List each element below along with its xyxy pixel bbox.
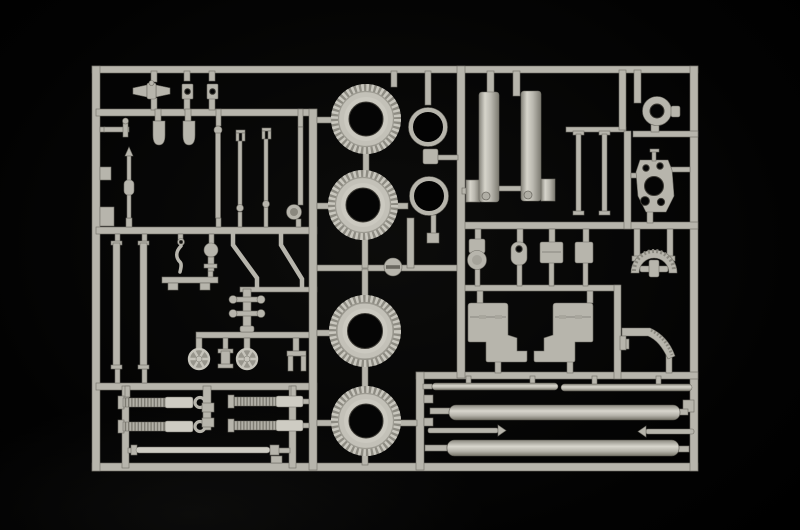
trail-plate-left [468,303,527,362]
slotted-disc-part [384,258,402,276]
thin-tube-1 [432,383,558,390]
link-rod-capped [214,126,222,218]
pointed-rod-left [428,425,506,436]
runner-above-plates [458,285,620,291]
sprue-photo [0,0,800,530]
bent-rod-2 [281,234,302,287]
legged-bracket-part [287,338,306,371]
rail-sector [614,285,621,379]
rail-center-right [457,66,465,378]
frame-rail-left [92,66,100,471]
thin-tube-2 [561,384,692,391]
ring-2 [410,177,449,216]
teardrop-fitting-1 [153,121,165,145]
runner-topleft-divider [96,109,317,116]
spring-center-tab-1 [202,403,214,412]
hook-lever-part [177,239,185,273]
tire-3 [329,295,401,367]
tire-4 [331,386,401,456]
long-rod-left-2 [138,241,149,369]
runner-left-divider [96,227,317,234]
fitting-round-cylinder [468,239,487,270]
runner-handwheel-bar [196,332,317,338]
axle-rod-part [131,445,282,463]
fitting-square-plate-2 [575,242,593,263]
thick-tube-2 [447,440,679,456]
bracket-bore [645,177,664,196]
tire-1 [331,84,401,154]
photo-stage [0,0,800,530]
handwheel-2 [237,338,258,370]
shock-absorber-4 [228,419,303,432]
runner-link-bar [240,287,317,292]
drilled-block-2 [207,84,218,99]
long-rod-left-1 [111,241,122,369]
piston-rod-2 [599,131,610,215]
ring-1 [409,108,448,147]
pointed-rod-right [638,426,694,437]
teardrop-fitting-2 [183,121,195,145]
cylinder-group [466,91,610,215]
bent-rod-1 [233,234,257,287]
fitting-square-plate-1 [540,242,563,263]
spring-center-tab-2 [202,418,214,427]
rail-ring-drop [407,218,414,268]
shackle-cluster-part [229,289,265,332]
runner-under-hub [633,131,698,137]
clevis-rod-1 [236,130,245,212]
piston-rod-1 [573,131,584,215]
handwheel-1 [189,338,210,370]
hub-tab [671,106,680,117]
tire-2 [328,170,398,240]
thick-tube-1 [449,405,680,420]
rail-bracket [624,131,631,229]
shock-absorber-1 [118,396,205,409]
recuperator-cylinder-2 [521,91,555,201]
bobbin-part [218,338,233,368]
runner-under-cylinders [458,222,698,229]
clevis-rod-2 [262,128,271,208]
rail-tire-left [309,109,317,470]
frame-rail-bottom [92,463,698,471]
tall-pin-part [124,147,134,218]
post-hub [634,70,641,103]
trail-plate-right [534,303,593,362]
winged-fitting [133,81,170,100]
drilled-block-1 [182,84,193,99]
rod-with-pulley [287,127,304,220]
hub-ring-part [643,97,681,126]
fitting-keyhole-plate [511,242,527,265]
tube-group [428,383,694,456]
shock-absorber-2 [118,420,205,433]
post-rod-frame [619,70,626,130]
recuperator-cylinder-1 [466,92,499,202]
shock-absorber-3 [228,395,303,408]
ball-stem-part [204,243,218,271]
cradle-bracket-part [636,149,674,212]
sub-bar-fixture [162,277,218,290]
l-bracket-fitting [104,118,129,137]
